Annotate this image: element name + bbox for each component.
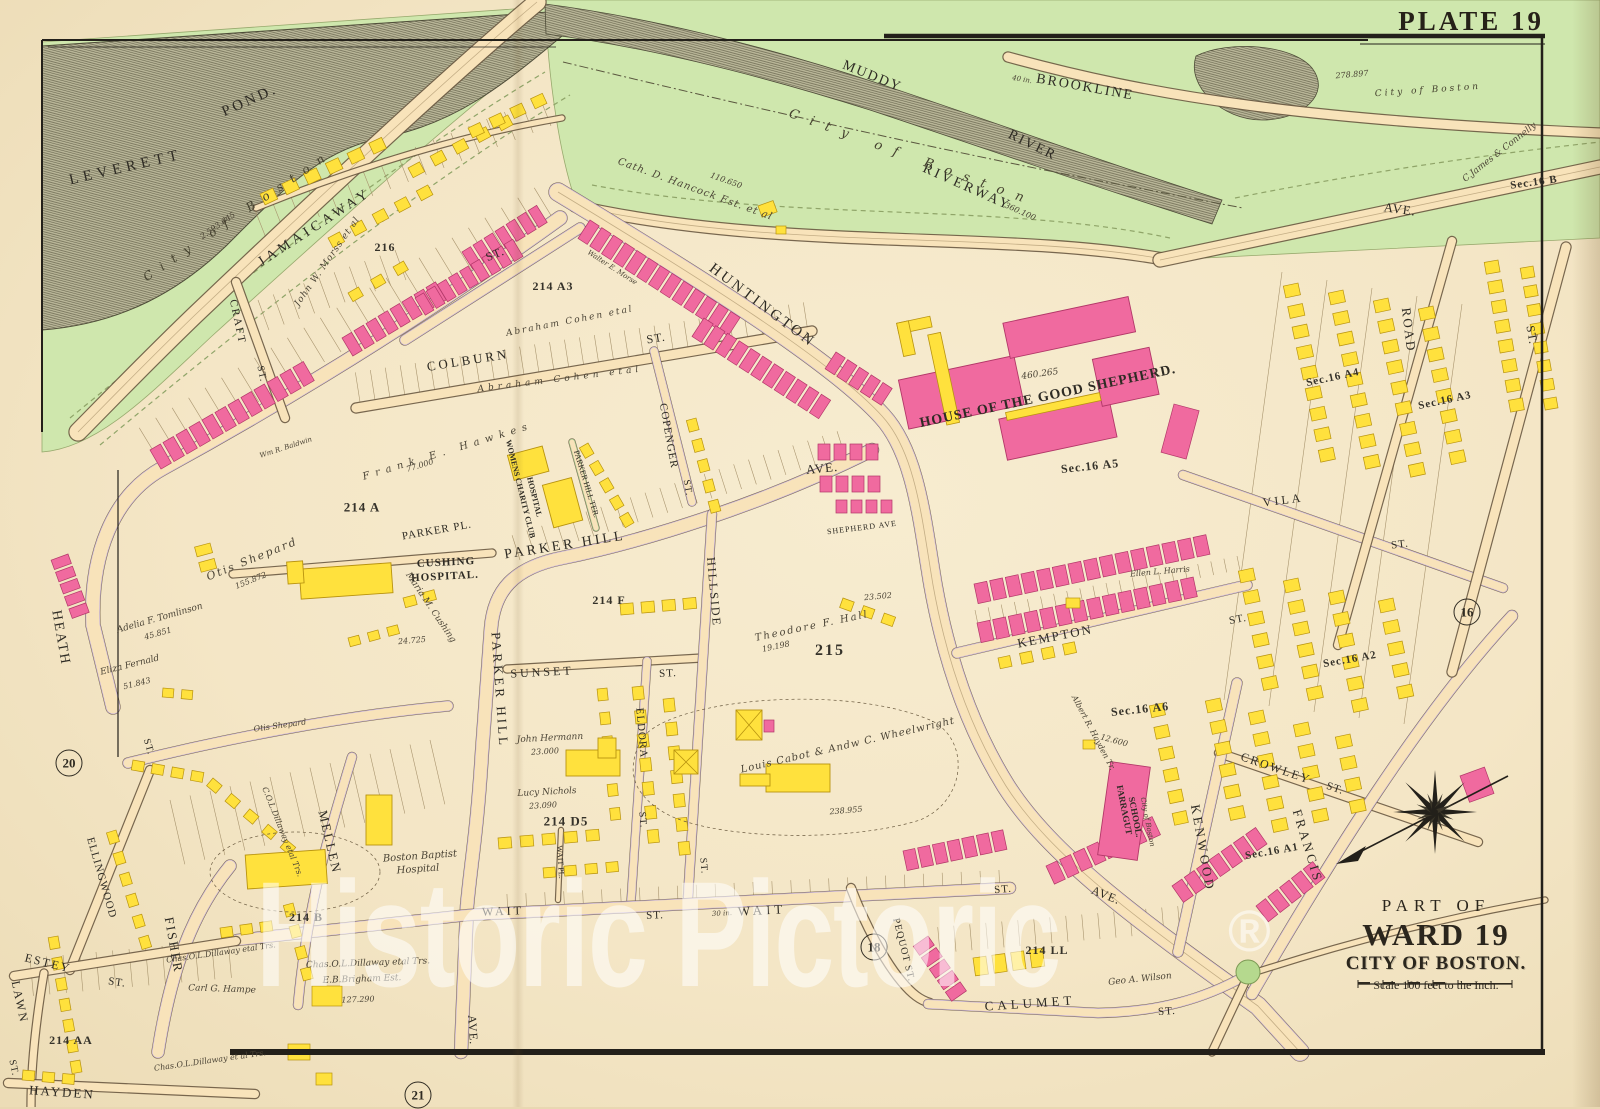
label-st-right: ST. — [1524, 325, 1539, 346]
label-brookline: BROOKLINE — [1035, 73, 1135, 104]
label-eldora-st: ST. — [636, 811, 647, 828]
label-cohen-2: Abraham Cohen etal — [477, 365, 643, 394]
label-hall: Theodore F. Hall — [754, 610, 870, 644]
label-brigham-n: 127.290 — [341, 995, 374, 1004]
label-tomlinson-n: 45.851 — [143, 626, 172, 641]
label-wait-30in: 30 in. — [712, 910, 732, 918]
label-hancock: Cath. D. Hancock Est. et al — [616, 157, 774, 223]
label-hermann: John Hermann — [517, 733, 584, 745]
label-wait-e: WAIT — [737, 902, 786, 918]
label-crowley: CROWLEY — [1239, 750, 1312, 785]
label-heath: HEATH — [48, 609, 71, 666]
label-sec-214ll: 214 LL — [1025, 944, 1068, 956]
label-sec-16a3: Sec.16 A3 — [1417, 390, 1472, 412]
title-ward: WARD 19 — [1338, 917, 1534, 953]
label-sec-214a: 214 A — [344, 501, 380, 514]
label-pequot: PEQUOT ST. — [890, 917, 915, 983]
title-city: CITY OF BOSTON. — [1338, 953, 1534, 975]
page-fold-crease — [512, 0, 524, 1107]
label-city-boston-1: City of Boston — [141, 147, 335, 283]
label-hillside: HILLSIDE — [705, 557, 723, 628]
label-baldwin: Wm R. Baldwin — [259, 436, 313, 460]
label-wait-e-st: ST. — [994, 884, 1013, 897]
label-colburn: COLBURN — [426, 347, 510, 373]
page-edge-shadow — [1572, 0, 1600, 1107]
circled-number-16: 16 — [1454, 599, 1481, 626]
label-sec-214d5: 214 D5 — [544, 815, 589, 828]
label-cabot: Louis Cabot & Andw C. Wheelwright — [740, 716, 956, 775]
label-sec-16a2: Sec.16 A2 — [1322, 650, 1377, 670]
label-fernald-n: 51.843 — [122, 677, 151, 692]
label-brigham: E.B.Brigham Est. — [323, 974, 402, 986]
label-n-460265: 460.265 — [1021, 368, 1059, 382]
label-sec-16a4: Sec.16 A4 — [1305, 367, 1360, 389]
label-lawn-st: ST. — [6, 1059, 19, 1077]
label-hayden: HAYDEN — [29, 1083, 95, 1101]
circled-number-21: 21 — [405, 1082, 432, 1109]
map-title-block: PART OF WARD 19 CITY OF BOSTON. Scale 10… — [1338, 896, 1534, 993]
label-estey: ESTEY — [24, 951, 73, 974]
label-copenger-st: ST. — [681, 479, 694, 497]
label-colburn-st: ST. — [646, 331, 667, 346]
label-cabot-n: 238.955 — [829, 806, 863, 817]
label-calumet: CALUMET — [984, 993, 1076, 1012]
label-muddy: MUDDY — [840, 59, 904, 96]
label-wait-pl: WAIT PL. — [555, 845, 565, 879]
label-n-23502: 23.502 — [864, 592, 893, 602]
label-fisher: FISHER — [163, 916, 186, 974]
label-dillaway-3: Chas.O.L.Dillaway et al Trs. — [154, 1049, 267, 1073]
label-road: ROAD — [1400, 307, 1418, 353]
label-sec-16a6: Sec.16 A6 — [1110, 700, 1169, 718]
label-leverett: LEVERETT — [68, 148, 184, 189]
label-sec-214f: 214 F — [592, 594, 625, 606]
label-sunset-st: ST. — [659, 668, 677, 680]
label-craft: CRAFT — [227, 299, 247, 346]
label-ave-south: AVE. — [466, 1015, 480, 1046]
label-eldora: ELDORA — [633, 707, 648, 758]
label-kempton: KEMPTON — [1016, 622, 1094, 649]
label-sec-214b: 214 B — [289, 911, 323, 923]
label-hayden-tr: Albert R. Hayden Tr. — [1070, 694, 1116, 772]
label-wilson: Geo A. Wilson — [1108, 972, 1172, 988]
label-lawn: LAWN — [10, 980, 31, 1025]
label-ellingwood: ELLINGWOOD — [84, 836, 118, 920]
circled-number-20: 20 — [56, 750, 83, 777]
label-mellen: MELLEN — [316, 809, 343, 875]
label-hermann-n: 23.000 — [531, 747, 559, 756]
label-huntington-ave: AVE. — [1090, 884, 1122, 906]
label-morse: Walter E. Morse — [586, 249, 638, 286]
label-ave-top-right: AVE. — [1383, 200, 1417, 217]
label-james-connelly: C.James & Connelly — [1461, 122, 1538, 185]
label-sec-216: 216 — [375, 241, 396, 253]
label-calumet-st: ST. — [1158, 1006, 1177, 1018]
label-baptist-2: Hospital — [396, 864, 439, 877]
label-city-boston-2: City of Boston — [787, 107, 1037, 209]
label-wait-w-st: ST. — [646, 910, 664, 922]
label-estey-st: ST. — [107, 976, 126, 989]
label-copenger: COPENGER — [657, 403, 679, 470]
label-shepherd-ave: SHEPHERD AVE — [827, 520, 898, 537]
label-cushing-hospital-1: CUSHING — [417, 556, 476, 570]
label-sec-16a5: Sec.16 A5 — [1060, 457, 1119, 475]
title-part-of: PART OF — [1338, 896, 1534, 916]
label-ellingwood-st: ST. — [141, 738, 155, 757]
label-fernald: Eliza Fernald — [100, 654, 161, 677]
label-vila: VILA — [1262, 492, 1304, 509]
label-pond: POND. — [220, 82, 281, 120]
label-sec-215: 215 — [815, 643, 845, 659]
label-nichols-n: 23.090 — [529, 801, 557, 810]
label-vila-st: ST. — [1391, 538, 1410, 551]
plate-number: PLATE 19 — [1398, 6, 1544, 37]
label-city-boston-3: City of Boston — [1375, 83, 1482, 99]
label-hillside-st: ST. — [697, 857, 708, 874]
label-n-278897: 278.897 — [1335, 70, 1369, 81]
label-brookline-40in: 40 in. — [1011, 75, 1032, 85]
label-craft-st: ST. — [254, 365, 267, 383]
label-dillaway-1: C.O.L.Dillaway etal Trs. — [260, 786, 303, 878]
title-scale-note: Scale 100 feet to the Inch. — [1338, 978, 1534, 993]
label-shepard-2: Otis Shepard — [253, 718, 307, 733]
label-sec-214aa: 214 AA — [49, 1034, 93, 1046]
label-hampe: Carl G. Hampe — [188, 984, 256, 995]
label-sec-16a1: Sec.16 A1 — [1244, 842, 1299, 862]
label-dillaway-2: Chas.O.L.Dillaway etal Trs. — [166, 941, 276, 964]
label-nichols: Lucy Nichols — [517, 787, 577, 799]
label-shepard-n: 155.872 — [234, 571, 268, 591]
label-cushing-hospital-2: HOSPITAL. — [411, 570, 479, 585]
circled-number-18: 18 — [861, 934, 888, 961]
label-crowley-st: ST. — [1325, 781, 1345, 797]
label-sec-16b: Sec.16 B — [1510, 174, 1559, 192]
label-parker-hill-s: PARKER HILL — [489, 632, 510, 749]
label-m-cushing-n: 24.725 — [398, 636, 427, 646]
label-kenwood: KENWOOD — [1189, 803, 1217, 892]
label-st-upper: ST. — [484, 245, 506, 263]
label-huntington: HUNTINGTON — [706, 261, 818, 351]
atlas-map-canvas: JAMAICAWAYCRAFTST.ST.COLBURNST.HUNTINGTO… — [0, 0, 1600, 1107]
label-parker-hill-ave: AVE. — [805, 460, 838, 476]
label-hall-n: 19.198 — [761, 640, 790, 654]
label-hancock-n: 110.650 — [709, 172, 743, 191]
label-parker-pl: PARKER PL. — [401, 519, 473, 542]
label-cohen-1: Abraham Cohen etal — [505, 305, 634, 339]
label-baptist-1: Boston Baptist — [383, 849, 458, 864]
label-dillaway-4: Chas.O.L.Dillaway etal Trs. — [306, 957, 430, 970]
label-harris: Ellen L. Harris — [1130, 565, 1190, 578]
label-parker-hill-ter: PARKER HILL TER. — [572, 449, 600, 518]
label-kempton-st: ST. — [1228, 613, 1248, 627]
label-sec-214a3: 214 A3 — [532, 280, 573, 292]
label-river: RIVER — [1006, 128, 1059, 163]
